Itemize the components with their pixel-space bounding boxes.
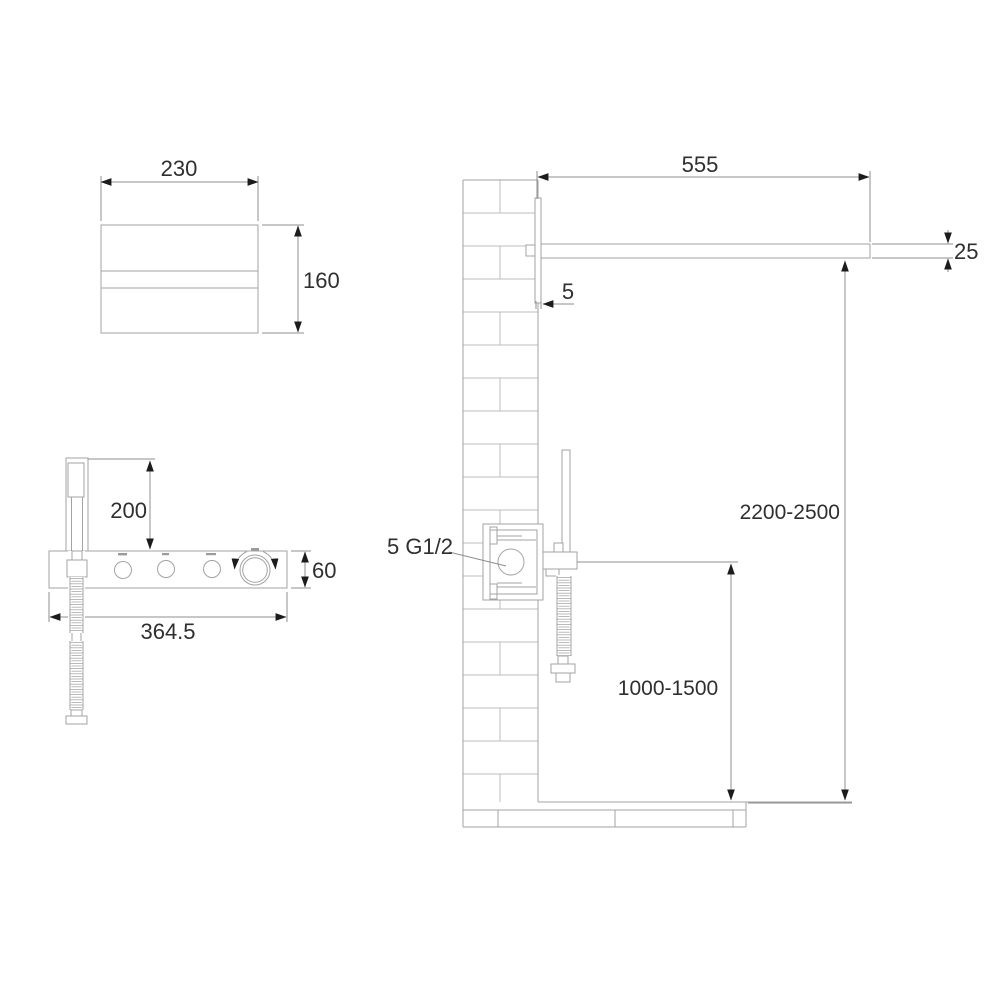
dim-arm-length: 555 <box>682 152 719 177</box>
button-2-icon <box>162 553 169 555</box>
head-plan-outline <box>101 225 258 333</box>
dim-handshower-height-range: 1000-1500 <box>618 677 718 700</box>
shower-arm <box>541 244 870 258</box>
handshower-holder <box>543 552 577 569</box>
holder-tab <box>546 569 559 576</box>
side-hose-flange <box>551 664 575 673</box>
handshower-hose-side <box>551 575 575 682</box>
valve-connection-label: 5 G1/2 <box>387 534 453 559</box>
top-view-figure <box>101 225 258 333</box>
valve-box-outer <box>483 524 543 600</box>
button-1-icon <box>118 553 127 555</box>
dim-handshower-height: 200 <box>110 498 147 523</box>
handshower-side-handle <box>562 450 570 553</box>
dim-plate-thickness: 5 <box>562 279 574 304</box>
brick-wall-pattern <box>463 180 538 802</box>
dim-head-depth: 160 <box>303 268 340 293</box>
dim-panel-width: 364.5 <box>140 619 195 644</box>
holder-clamp <box>554 543 563 552</box>
knob-icon <box>251 548 259 551</box>
button-3-icon <box>206 553 216 555</box>
handshower-hose-front <box>66 551 87 724</box>
dim-arm-thickness: 25 <box>954 239 978 264</box>
technical-drawing: 230 160 200 60 <box>0 0 1000 1000</box>
dim-head-width: 230 <box>161 156 198 181</box>
dim-panel-height: 60 <box>312 558 336 583</box>
side-hose-nub <box>556 673 570 682</box>
hose-end-fitting <box>66 716 87 724</box>
wall-plate <box>535 198 541 303</box>
dim-head-height-range: 2200-2500 <box>740 501 840 524</box>
handshower-front-body <box>66 458 88 551</box>
drawing-page: 230 160 200 60 <box>0 0 1000 1000</box>
